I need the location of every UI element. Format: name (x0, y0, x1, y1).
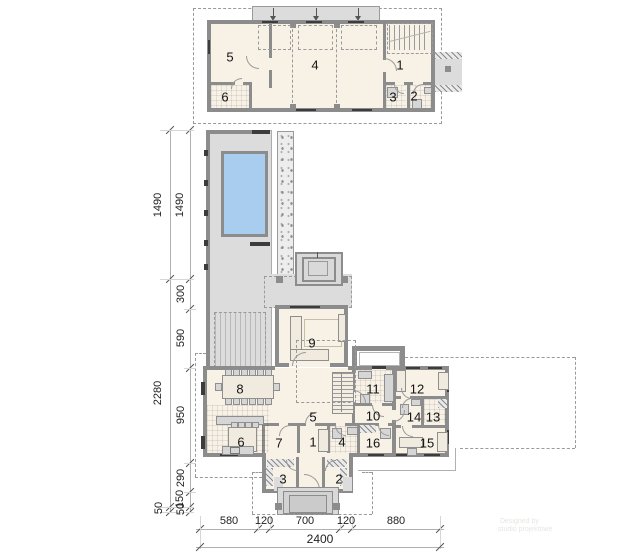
room-label: 7 (275, 436, 282, 451)
dimension-line (196, 547, 444, 548)
window (424, 454, 440, 456)
room-label: 3 (389, 90, 396, 105)
side-porch-inner (359, 352, 400, 366)
sink (411, 399, 421, 406)
terrace-doorway (252, 130, 270, 134)
room-label: 1 (309, 435, 316, 450)
wall (395, 396, 401, 399)
wall (206, 132, 210, 370)
extension-line (184, 309, 196, 310)
balcony-railing (435, 52, 462, 59)
chair (233, 398, 240, 405)
partition-dashed (292, 24, 293, 108)
window (290, 306, 320, 308)
room-label: 12 (410, 382, 424, 397)
void-outline (296, 340, 356, 403)
balcony-railing (435, 85, 462, 92)
room-label: 1 (396, 58, 403, 73)
room-label: 3 (279, 472, 286, 487)
wall (297, 423, 300, 453)
roof-outline (575, 357, 576, 448)
roof-outline (460, 448, 575, 449)
window (296, 109, 316, 111)
side-entrance-door (372, 366, 386, 369)
wardrobe-outline (258, 25, 291, 50)
chair (273, 383, 280, 391)
terrace-doorway (250, 242, 270, 246)
dimension-value: 120 (337, 515, 355, 527)
chair (249, 369, 256, 376)
balcony-arrow-icon (358, 8, 359, 16)
room-label: 14 (407, 410, 421, 425)
path-edge (455, 448, 456, 471)
chair (241, 398, 248, 405)
dimension-value: 950 (175, 406, 187, 424)
dimension-value: 1490 (174, 193, 186, 217)
room-label: 9 (308, 336, 315, 351)
window (368, 454, 384, 456)
fence-post (204, 264, 208, 270)
pergola (214, 312, 266, 368)
room-label: 2 (335, 472, 342, 487)
fence-post (204, 180, 208, 186)
room-label: 4 (338, 435, 345, 450)
dimension-value: 50 (175, 503, 187, 515)
extension-line (160, 130, 194, 131)
chair (407, 448, 417, 456)
dimension-value: 290 (175, 469, 187, 487)
window (208, 40, 210, 54)
bathroom-floor (211, 85, 249, 108)
chair (265, 398, 272, 405)
sink (358, 371, 372, 379)
chair (257, 369, 264, 376)
stool (252, 422, 259, 428)
dimension-value: 300 (175, 285, 187, 303)
chair (265, 369, 272, 376)
porch-column (275, 503, 282, 510)
cabinet (437, 432, 448, 452)
roof-outline (372, 472, 373, 514)
porch-cheek (343, 477, 352, 491)
roof-outline (252, 472, 262, 473)
chair (233, 369, 240, 376)
side-porch-roof (352, 346, 405, 351)
wall-stub (334, 104, 340, 112)
porch-step (289, 495, 327, 513)
room-label: 15 (420, 436, 434, 451)
chair (225, 398, 232, 405)
dimension-value: 580 (220, 515, 238, 527)
room-label: 10 (366, 409, 380, 424)
garden-stair-step (308, 261, 328, 276)
stair-treads (389, 25, 429, 50)
wardrobe-outline (298, 25, 333, 50)
room-label: 5 (226, 50, 233, 65)
shower (438, 399, 447, 408)
dimension-value: 590 (175, 329, 187, 347)
stool (238, 422, 245, 428)
dimension-total: 2400 (307, 532, 334, 546)
wardrobe-outline (341, 25, 377, 50)
dimension-value: 880 (387, 515, 405, 527)
wall (383, 20, 386, 60)
window (348, 21, 364, 23)
closet (318, 429, 329, 452)
sink (347, 427, 358, 435)
room-label: 13 (426, 410, 440, 425)
wall (275, 305, 279, 367)
side-porch-roof (400, 346, 405, 366)
room-label: 4 (311, 58, 318, 73)
window (428, 367, 442, 369)
path-edge (358, 470, 455, 471)
watermark: studio projektowe (498, 526, 552, 533)
balcony-post (445, 66, 451, 72)
dimension-line (196, 529, 444, 530)
fence-post (204, 210, 208, 216)
wall-stub (334, 20, 340, 28)
extension-line (184, 368, 196, 369)
extension-line (184, 463, 196, 464)
dimension-value: 120 (255, 515, 273, 527)
roof-outline (405, 357, 575, 358)
wall (322, 457, 325, 489)
floor-plan-canvas: 5 4 6 1 3 2 (0, 0, 638, 556)
porch-column (333, 503, 340, 510)
pool (221, 151, 268, 237)
window (306, 21, 322, 23)
terrace-post (276, 276, 283, 283)
stair-axis (317, 252, 318, 258)
room-label: 8 (236, 382, 243, 397)
wall (395, 425, 401, 428)
terrace-post (341, 276, 348, 283)
window (201, 436, 205, 449)
roof-outline (252, 472, 253, 514)
chair (241, 369, 248, 376)
tv-cabinet (338, 314, 346, 342)
dimension-value: 2280 (152, 381, 164, 405)
window (352, 109, 372, 111)
cabinet (438, 372, 449, 390)
bathtub (384, 374, 394, 402)
window (262, 21, 278, 23)
dimension-value: 700 (296, 515, 314, 527)
dimension-value: 50 (153, 502, 165, 514)
balcony-arrow-icon (273, 8, 274, 16)
roof-outline (195, 353, 196, 477)
room-label: 16 (366, 436, 380, 451)
sink (424, 87, 432, 94)
dimension-line (190, 130, 191, 512)
dining-table (222, 375, 274, 399)
chair (249, 398, 256, 405)
fence-post (204, 240, 208, 246)
fence-post (204, 150, 208, 156)
closet (266, 468, 273, 486)
stool (245, 422, 252, 428)
roof-outline (195, 353, 206, 354)
stone-wall (277, 131, 294, 284)
room-label: 6 (221, 90, 228, 105)
room-label: 6 (237, 435, 244, 450)
watermark: Designed by (500, 518, 539, 525)
chair (215, 383, 222, 391)
window (201, 382, 205, 395)
wall (249, 82, 252, 108)
room-label: 5 (309, 410, 316, 425)
stool (231, 422, 238, 428)
dimension-value: 1490 (152, 193, 164, 217)
room-label: 11 (366, 382, 380, 397)
roof-outline (362, 472, 372, 473)
washer-dryer (360, 425, 376, 433)
chair (257, 398, 264, 405)
wall (207, 108, 435, 112)
wall (412, 425, 449, 428)
window (406, 367, 420, 369)
wall (275, 363, 289, 367)
wall (269, 70, 272, 88)
chair (225, 369, 232, 376)
dimension-line (170, 130, 171, 512)
extension-line (160, 279, 194, 280)
partition-dashed (336, 24, 337, 108)
balcony-arrow-icon (316, 8, 317, 16)
room-label: 2 (410, 89, 417, 104)
